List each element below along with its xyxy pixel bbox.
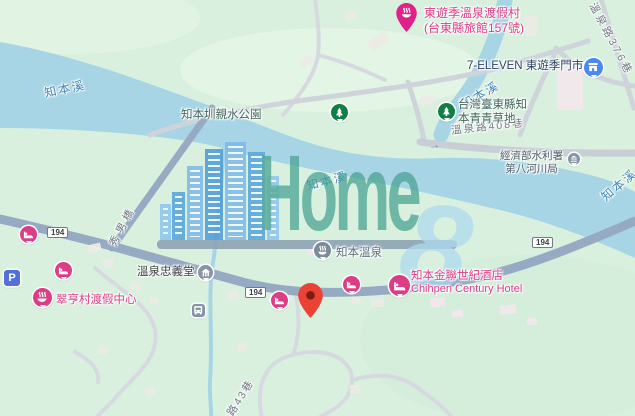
convenience-store-icon[interactable] (584, 58, 603, 77)
poi-label-zhiben-hotspring[interactable]: 知本溫泉 (336, 244, 382, 260)
bus-stop-icon[interactable] (192, 304, 205, 317)
poi-label-grassland[interactable]: 台灣臺東縣知 本青青草地 (458, 98, 527, 127)
watermark-building (225, 142, 246, 240)
watermark-home-text: Home (258, 150, 418, 236)
hotel-bed-icon[interactable] (389, 275, 410, 296)
poi-label-century-hotel[interactable]: 知本金聯世紀酒店 Chihpen Century Hotel (411, 269, 522, 297)
spa-onsen-icon[interactable] (33, 288, 52, 307)
government-building-icon[interactable] (568, 153, 580, 165)
poi-label-zhongyi-temple[interactable]: 溫泉忠義堂 (137, 263, 195, 279)
poi-label-cuiheng-resort[interactable]: 翠亨村渡假中心 (56, 291, 137, 307)
lodging-bed-icon[interactable] (343, 276, 360, 293)
one-way-arrow-icon: → (427, 137, 442, 153)
poi-label-toyugi-resort[interactable]: 東遊季溫泉渡假村 (台東縣旅館157號) (424, 6, 524, 36)
route-badge-194: 194 (245, 287, 266, 298)
route-badge-194: 194 (532, 237, 553, 248)
poi-label-seven-eleven[interactable]: 7-ELEVEN 東遊季門市 (467, 57, 583, 73)
poi-label-qinshui-park[interactable]: 知本圳親水公園 (181, 106, 262, 122)
hot-spring-icon[interactable] (314, 242, 331, 259)
hot-spring-resort-pin-icon[interactable] (396, 3, 417, 32)
lodging-bed-icon[interactable] (271, 292, 288, 309)
lodging-bed-icon[interactable] (55, 262, 72, 279)
lodging-bed-icon[interactable] (20, 226, 37, 243)
parking-icon[interactable]: P (4, 270, 20, 286)
poi-label-river-bureau[interactable]: 經濟部水利署 第八河川局 (500, 150, 563, 176)
map-canvas[interactable]: Home 8 知本溪 知本溪 知本溪 知本溪 溫泉路408巷 溫泉路376巷 秀… (0, 0, 635, 416)
watermark-building (205, 149, 223, 240)
temple-icon[interactable] (198, 265, 213, 280)
dropped-red-pin[interactable] (298, 283, 323, 318)
route-badge-194: 194 (47, 227, 68, 238)
watermark-building (187, 166, 203, 240)
park-tree-icon[interactable] (438, 103, 455, 120)
park-tree-icon[interactable] (331, 104, 348, 121)
watermark-building (172, 192, 185, 240)
watermark-building (160, 204, 171, 240)
